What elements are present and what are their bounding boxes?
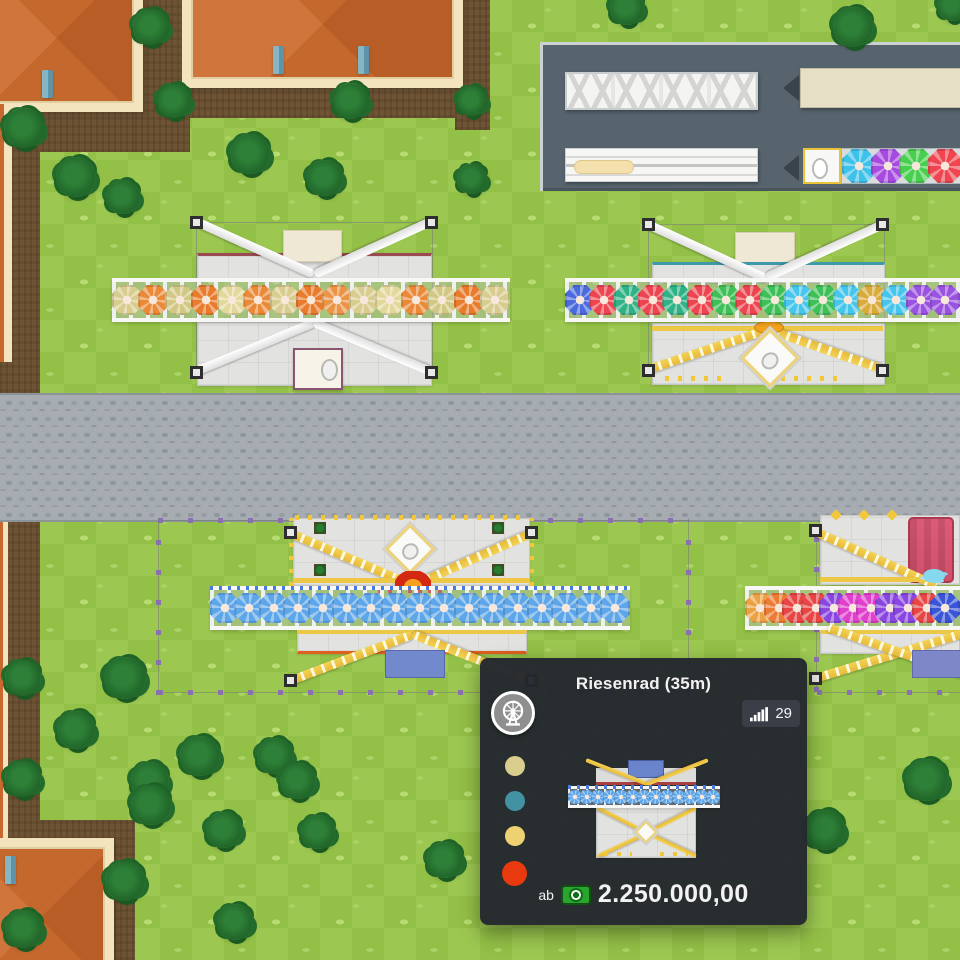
tree bbox=[206, 812, 242, 848]
tree bbox=[133, 9, 169, 45]
color-option-dot[interactable] bbox=[505, 791, 525, 811]
preview-gondola-strip bbox=[568, 786, 720, 808]
booth-window bbox=[321, 359, 338, 381]
tree bbox=[131, 785, 171, 825]
cab-window bbox=[812, 158, 828, 179]
tree bbox=[4, 108, 44, 148]
light-string bbox=[781, 376, 841, 381]
price-row: ab 2.250.000,00 bbox=[480, 880, 807, 909]
preview-box bbox=[628, 760, 664, 778]
gondola-strip bbox=[112, 278, 510, 322]
preview-lights bbox=[604, 852, 632, 856]
anchor-corner bbox=[525, 526, 538, 539]
splash-decoration bbox=[923, 569, 945, 583]
tree bbox=[333, 83, 369, 119]
ferris-wheel-multicolor[interactable] bbox=[555, 180, 960, 410]
truck-cab-icon bbox=[783, 155, 799, 181]
gondola-wheel bbox=[112, 285, 142, 315]
flatbed-trailer[interactable] bbox=[800, 68, 960, 108]
tree bbox=[56, 157, 96, 197]
color-options bbox=[502, 756, 527, 886]
canopy-window bbox=[399, 540, 422, 563]
ferris-wheel-orange[interactable] bbox=[100, 180, 520, 410]
anchor-corner bbox=[642, 218, 655, 231]
truck-parking-lot bbox=[540, 42, 960, 191]
gondola-wheel bbox=[427, 285, 457, 315]
anchor-corner bbox=[809, 672, 822, 685]
truss-trailer[interactable] bbox=[565, 72, 758, 110]
anchor-corner bbox=[876, 364, 889, 377]
booth bbox=[283, 230, 342, 262]
gondola-wheel bbox=[930, 593, 960, 623]
color-option-dot[interactable] bbox=[505, 826, 525, 846]
light-string bbox=[665, 376, 725, 381]
gondola-wheel bbox=[401, 285, 431, 315]
tree bbox=[280, 763, 316, 799]
tree bbox=[805, 810, 845, 850]
tree bbox=[217, 904, 253, 940]
ride-title: Riesenrad (35m) bbox=[480, 674, 807, 694]
tree bbox=[833, 7, 873, 47]
tree bbox=[104, 657, 146, 699]
flame-decoration bbox=[395, 571, 431, 587]
preview-lights bbox=[660, 852, 688, 856]
gondola-strip bbox=[565, 278, 960, 322]
gondola-wheel bbox=[243, 285, 273, 315]
gondola-truck-bed[interactable] bbox=[841, 148, 960, 184]
anchor-corner bbox=[190, 216, 203, 229]
popularity-value: 29 bbox=[775, 705, 792, 722]
tree bbox=[906, 759, 948, 801]
anchor-corner bbox=[190, 366, 203, 379]
ride-info-card[interactable]: Riesenrad (35m) bbox=[480, 658, 807, 925]
tree bbox=[105, 861, 145, 901]
tree bbox=[57, 711, 95, 749]
folded-parts-trailer[interactable] bbox=[565, 148, 758, 182]
gondola-wheel bbox=[270, 285, 300, 315]
gondola-wheel bbox=[928, 149, 960, 183]
game-map[interactable]: Riesenrad (35m) bbox=[0, 0, 960, 960]
gondola-wheel bbox=[454, 285, 484, 315]
tree bbox=[301, 815, 335, 849]
tree bbox=[427, 842, 463, 878]
gondola-wheel bbox=[600, 593, 630, 623]
gondola-wheel bbox=[165, 285, 195, 315]
cobblestone-road bbox=[0, 393, 960, 522]
tree bbox=[230, 134, 270, 174]
tree bbox=[180, 736, 220, 776]
truck-cab-icon bbox=[783, 75, 799, 101]
plant-pot bbox=[314, 564, 326, 576]
anchor-corner bbox=[425, 366, 438, 379]
plant-pot bbox=[492, 522, 504, 534]
gondola-strip bbox=[745, 586, 960, 630]
anchor-corner bbox=[284, 674, 297, 687]
popularity-badge: 29 bbox=[742, 700, 800, 727]
tree bbox=[5, 910, 43, 948]
gondola-wheel bbox=[296, 285, 326, 315]
gondola-truck-cab[interactable] bbox=[803, 148, 841, 184]
lot-boundary bbox=[156, 518, 161, 695]
booth bbox=[735, 232, 795, 264]
lot-boundary bbox=[817, 690, 960, 695]
gondola-wheel bbox=[349, 285, 379, 315]
chimney bbox=[5, 856, 16, 884]
gondola-wheel bbox=[930, 285, 960, 315]
anchor-corner bbox=[876, 218, 889, 231]
chimney bbox=[42, 70, 53, 98]
light-string bbox=[295, 515, 528, 520]
money-icon bbox=[561, 885, 591, 905]
equipment-box bbox=[385, 650, 445, 678]
plant-pot bbox=[314, 522, 326, 534]
cashier-booth bbox=[293, 348, 343, 390]
ride-preview-image bbox=[568, 758, 723, 866]
gondola-wheel bbox=[375, 285, 405, 315]
price-prefix: ab bbox=[538, 887, 554, 903]
canopy-window bbox=[758, 349, 782, 373]
chimney bbox=[358, 46, 369, 74]
equipment-box bbox=[912, 650, 960, 678]
ferris-wheel-icon bbox=[491, 691, 535, 735]
gondola-wheel bbox=[191, 285, 221, 315]
gondola-wheel bbox=[322, 285, 352, 315]
tree bbox=[457, 86, 487, 116]
signal-bars-icon bbox=[750, 706, 770, 722]
folded-mast bbox=[574, 160, 634, 174]
tree bbox=[5, 761, 41, 797]
tree bbox=[157, 84, 191, 118]
color-option-dot[interactable] bbox=[505, 756, 525, 776]
chimney bbox=[273, 46, 284, 74]
anchor-corner bbox=[425, 216, 438, 229]
gondola-wheel bbox=[480, 285, 510, 315]
tree bbox=[5, 660, 41, 696]
house-roof bbox=[0, 0, 143, 112]
plant-pot bbox=[492, 564, 504, 576]
gondola-strip bbox=[210, 586, 630, 630]
price-amount: 2.250.000,00 bbox=[598, 880, 749, 909]
house-roof bbox=[182, 0, 463, 88]
anchor-corner bbox=[642, 364, 655, 377]
anchor-corner bbox=[284, 526, 297, 539]
gondola-wheel bbox=[138, 285, 168, 315]
anchor-corner bbox=[809, 524, 822, 537]
gondola-wheel bbox=[217, 285, 247, 315]
gondola-wheel bbox=[706, 790, 720, 804]
